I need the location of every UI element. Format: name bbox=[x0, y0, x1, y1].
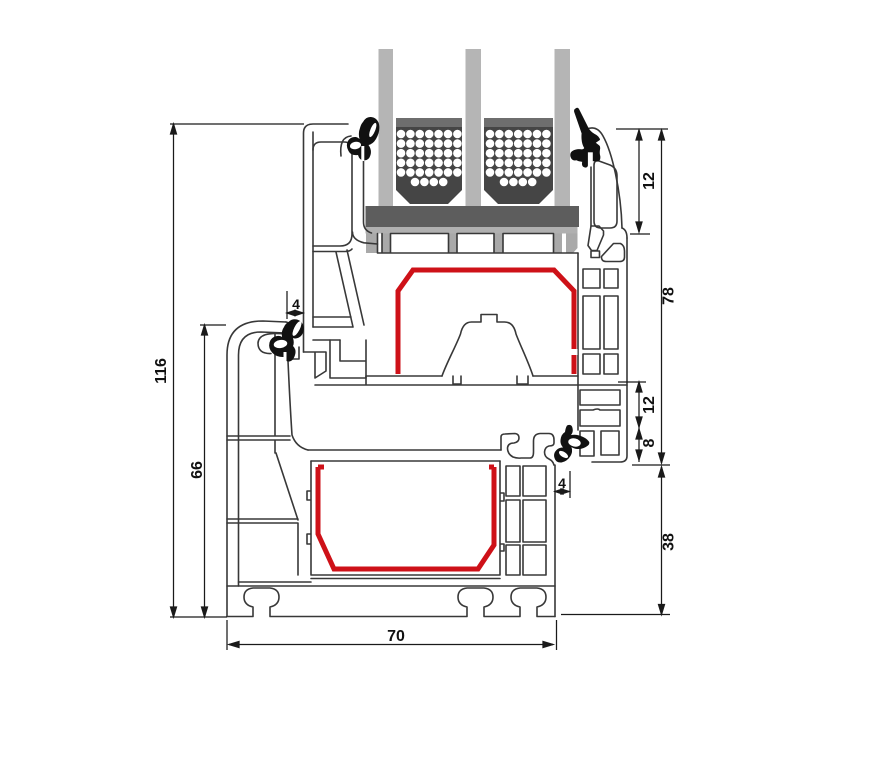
svg-text:38: 38 bbox=[661, 533, 678, 551]
svg-text:70: 70 bbox=[387, 628, 405, 645]
svg-text:66: 66 bbox=[189, 461, 206, 479]
svg-text:12: 12 bbox=[641, 172, 658, 190]
svg-text:116: 116 bbox=[153, 358, 170, 384]
svg-text:8: 8 bbox=[641, 438, 658, 447]
svg-text:12: 12 bbox=[641, 396, 658, 414]
svg-text:4: 4 bbox=[292, 296, 300, 312]
svg-text:4: 4 bbox=[558, 475, 566, 491]
svg-text:78: 78 bbox=[661, 287, 678, 305]
